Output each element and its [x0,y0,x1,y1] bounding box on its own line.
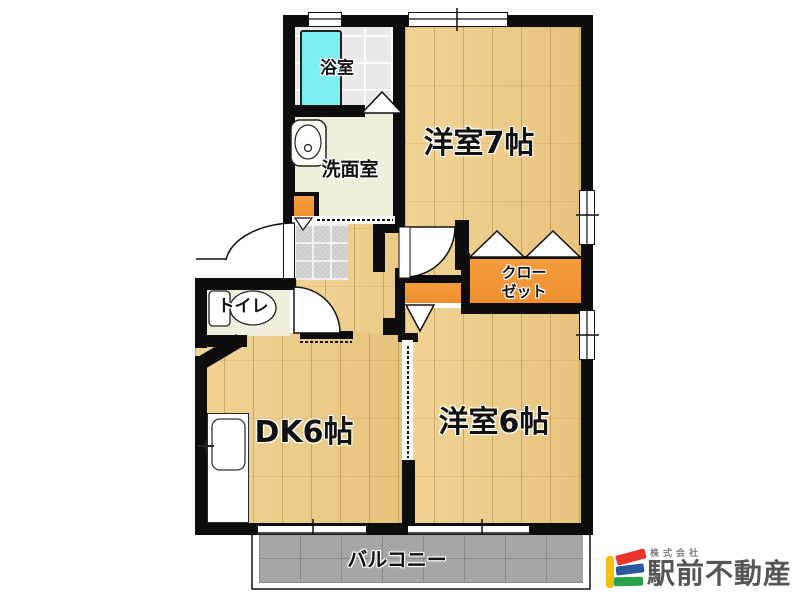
west6-balcony-slider [407,525,530,535]
dk-label: DK6帖 [254,407,353,451]
closet-small [405,283,461,303]
toilet-label: トイレ [218,292,269,317]
wall-closet-bottom [461,303,593,314]
wall-bottom [195,523,593,535]
balcony-label: バルコニー [347,544,447,573]
west7-label: 洋室7帖 [424,118,535,162]
wall-bath-west7-divider [393,15,405,223]
wall-closet-mid [461,253,470,305]
kitchen-counter [207,413,249,523]
bath-label: 浴室 [320,54,354,79]
west6-label: 洋室6帖 [439,397,550,441]
logo-stripe-blue-icon [616,563,645,575]
wall-hall-dk-stub [300,331,353,339]
wall-dk-west6-divider [402,460,415,535]
bath-window [308,12,342,27]
logo-stripe-green-icon [614,577,643,587]
wall-toilet-bottom [195,335,247,347]
wall-toilet-top [195,278,296,290]
entry-tile-floor [294,223,348,280]
entrance-door-leaf [283,222,295,279]
west7-right-window [579,190,595,245]
shoe-cabinet [294,196,314,216]
washroom-label: 洗面室 [321,155,378,182]
floorplan-page: 浴室 洗面室 トイレ DK6帖 洋室7帖 洋室6帖 クロー ゼット バルコニー … [0,0,800,600]
closet-label: クロー ゼット [501,263,546,301]
west6-right-window [579,310,595,360]
wall-hall-stub [373,220,385,272]
wall-right [581,15,593,535]
wall-west6-top-stub [398,333,418,342]
logo-bar-icon [606,556,614,588]
wall-small-closet-top [398,275,468,283]
wall-bath-washroom-divider [283,105,365,117]
closet-label-line2: ゼット [501,282,546,300]
dk-balcony-slider [257,525,367,535]
closet-label-line1: クロー [501,263,546,281]
wall-dk-left [195,356,207,535]
company-name-label: 駅前不動産 [647,552,792,592]
west7-top-window [408,12,508,27]
